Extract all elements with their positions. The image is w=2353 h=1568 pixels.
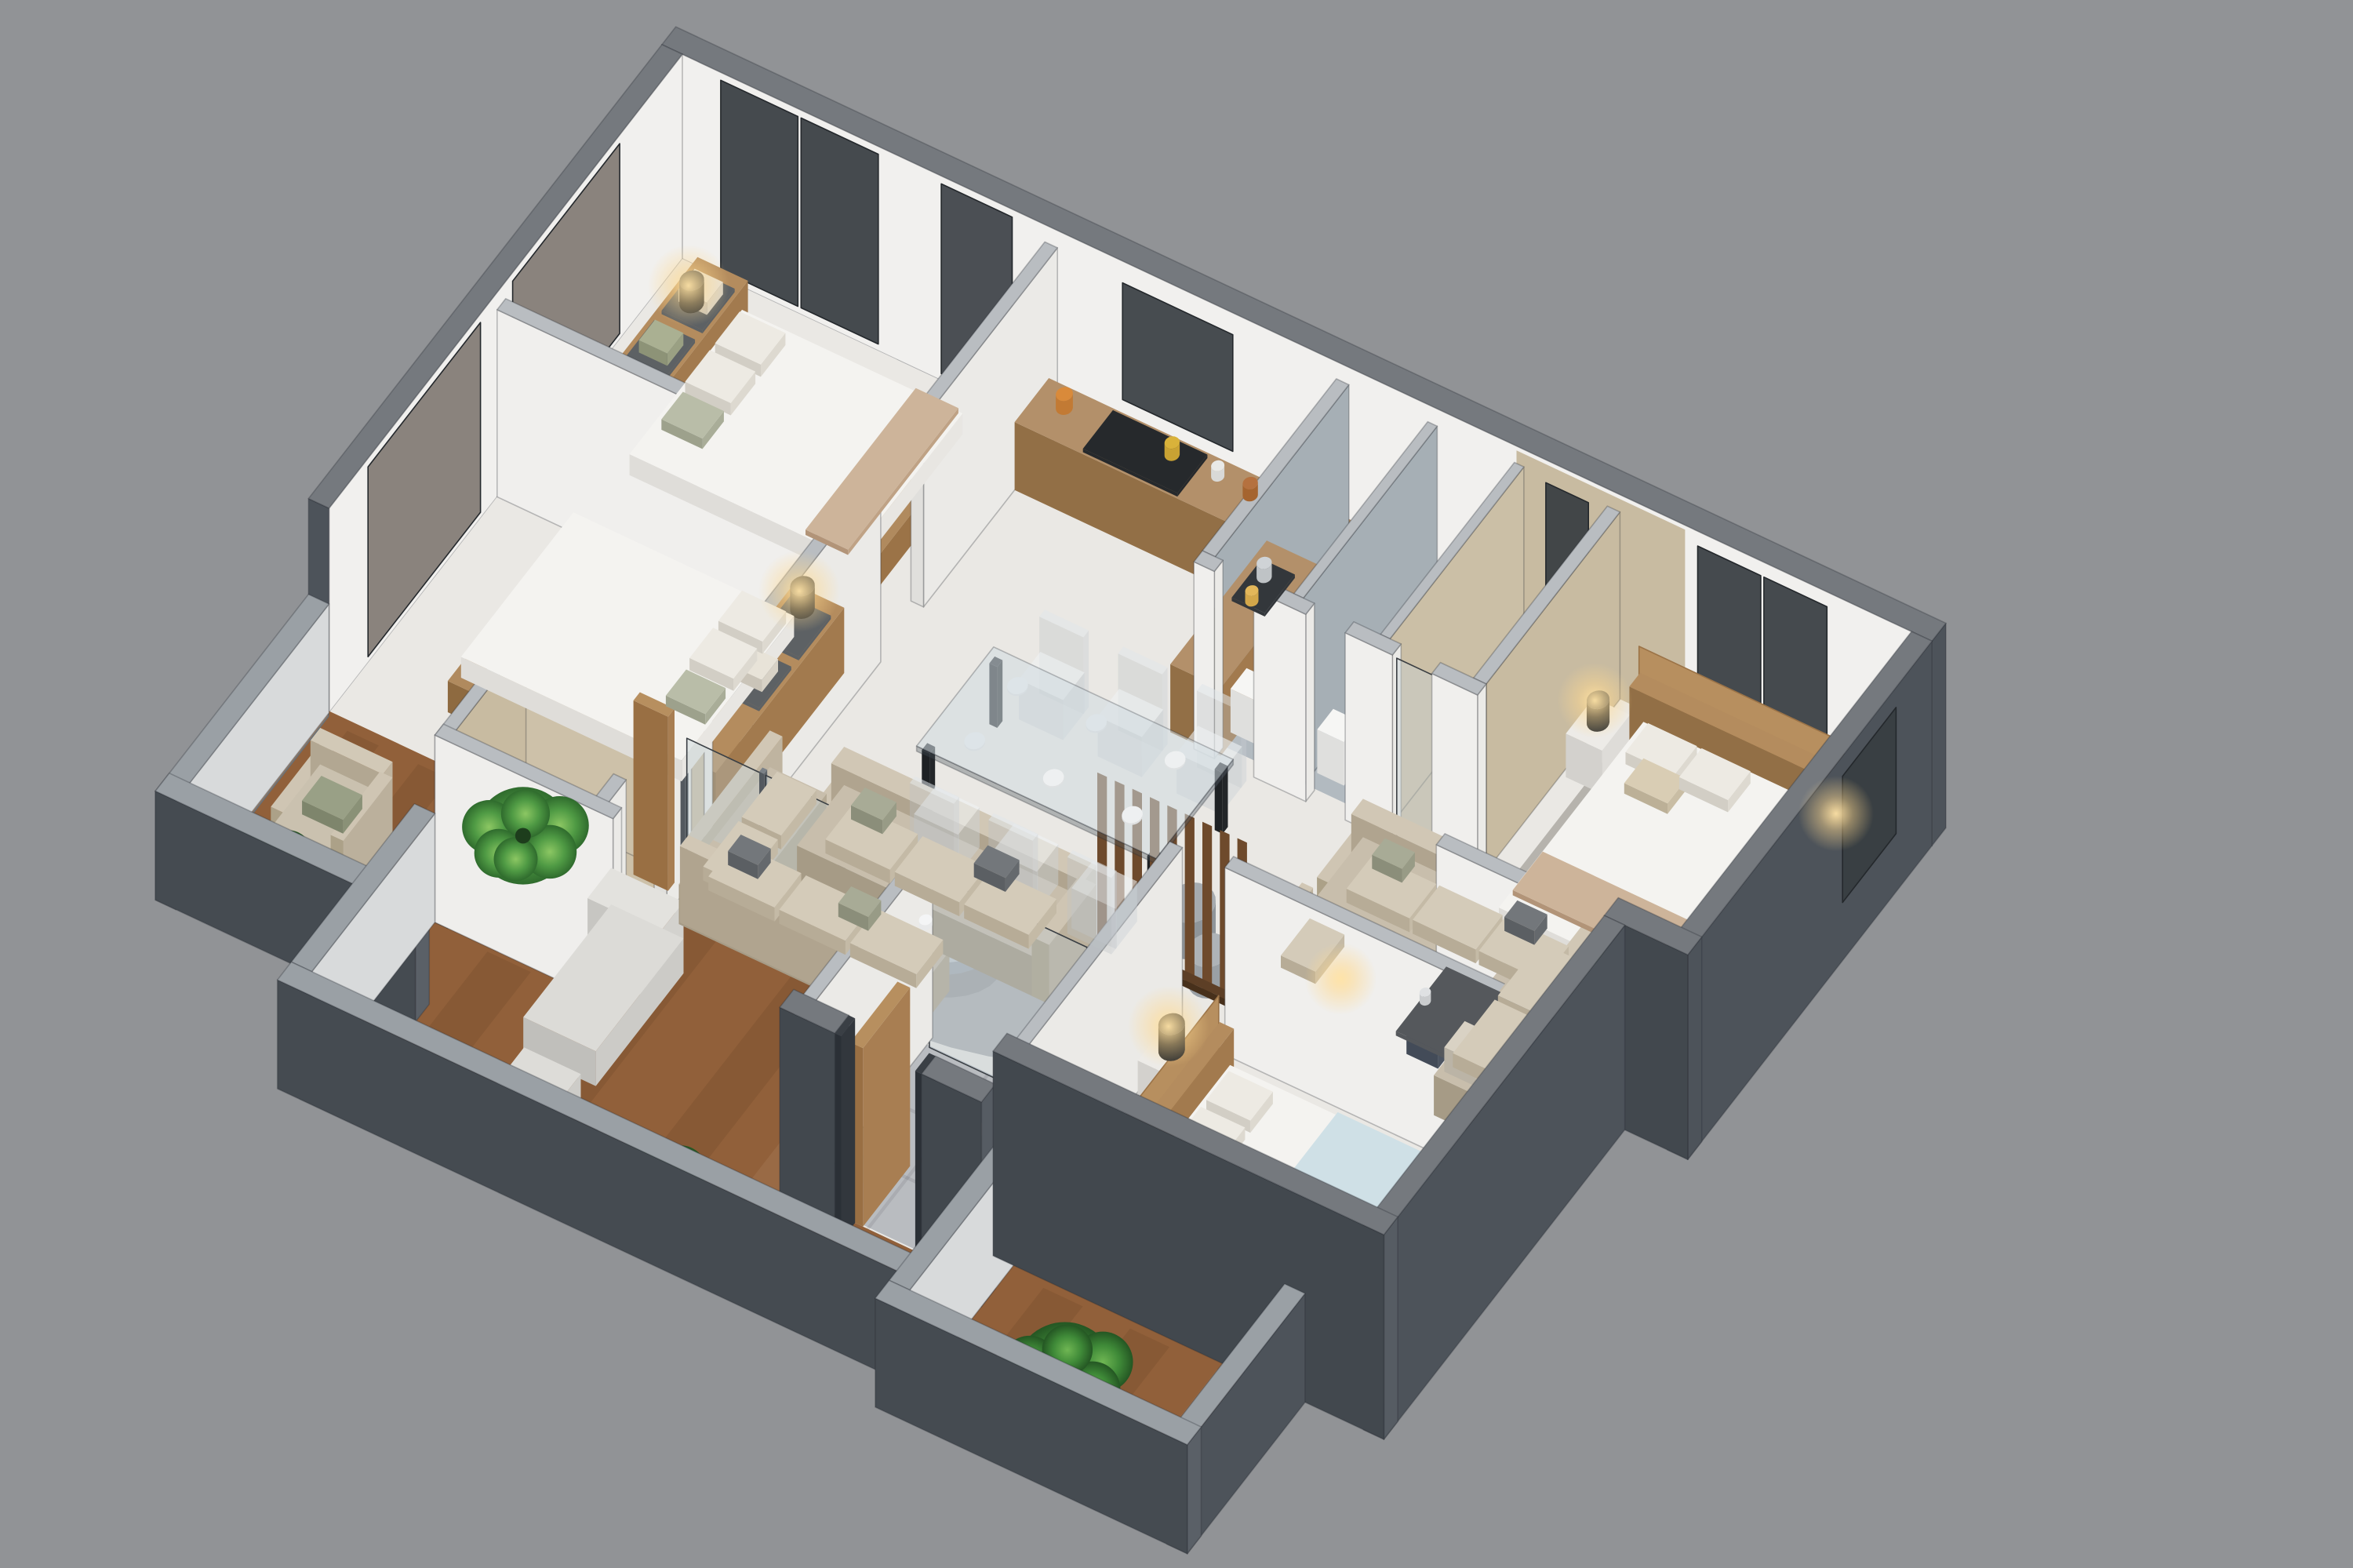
kitchen-bottle xyxy=(1257,557,1271,584)
door-wc3-open xyxy=(634,693,675,891)
kitchen-jar-orange xyxy=(1056,387,1073,415)
kitchen-bottle xyxy=(1246,585,1259,606)
glow-lamp-bedroom1 xyxy=(648,245,729,326)
entry-door-frame xyxy=(835,1015,855,1240)
floorplan-canvas xyxy=(0,0,2353,1568)
window-bedroom1-a xyxy=(721,80,798,306)
kitchen-jar-white xyxy=(1211,460,1224,482)
glow-lamp-bedroom2-east xyxy=(1798,776,1874,851)
floorplan-stage xyxy=(0,0,2353,1568)
decor-cup xyxy=(919,915,933,931)
glow-lamp-console xyxy=(1304,943,1377,1015)
kitchen-jar-copper xyxy=(1242,477,1257,501)
glow-lamp-bedroom4 xyxy=(1128,986,1209,1068)
decor-candle xyxy=(1420,988,1431,1006)
window-bedroom1-b xyxy=(801,118,878,344)
glow-lamp-bedroom3 xyxy=(758,551,840,632)
kitchen-jar-amber xyxy=(1165,436,1180,461)
glow-lamp-bedroom2-west xyxy=(1557,663,1632,738)
